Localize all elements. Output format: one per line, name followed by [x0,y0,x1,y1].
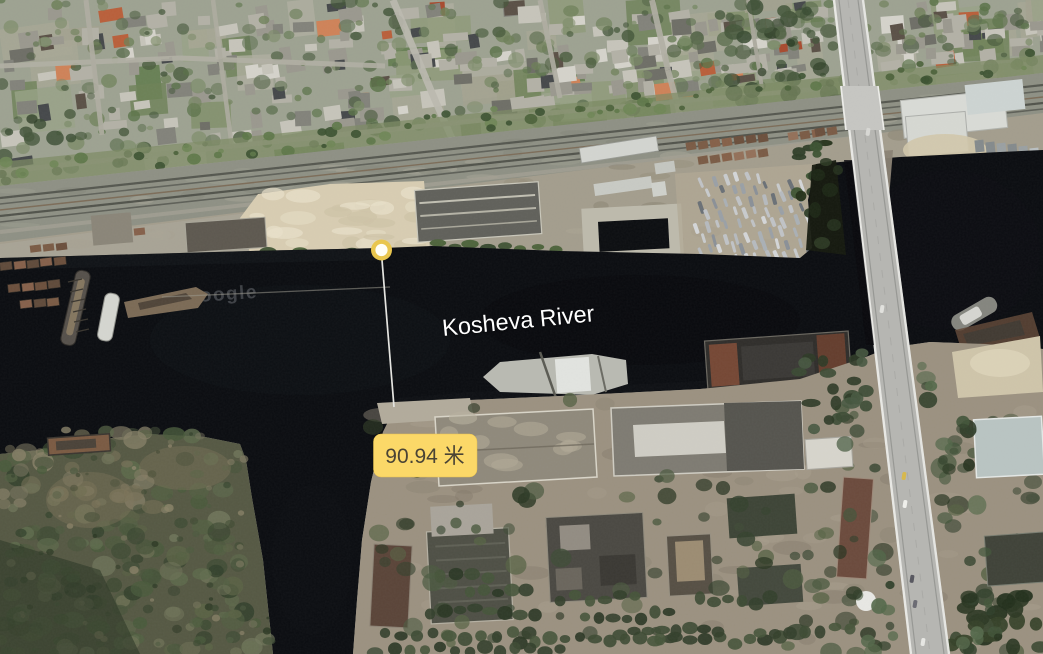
svg-text:90.94 米: 90.94 米 [385,445,464,468]
